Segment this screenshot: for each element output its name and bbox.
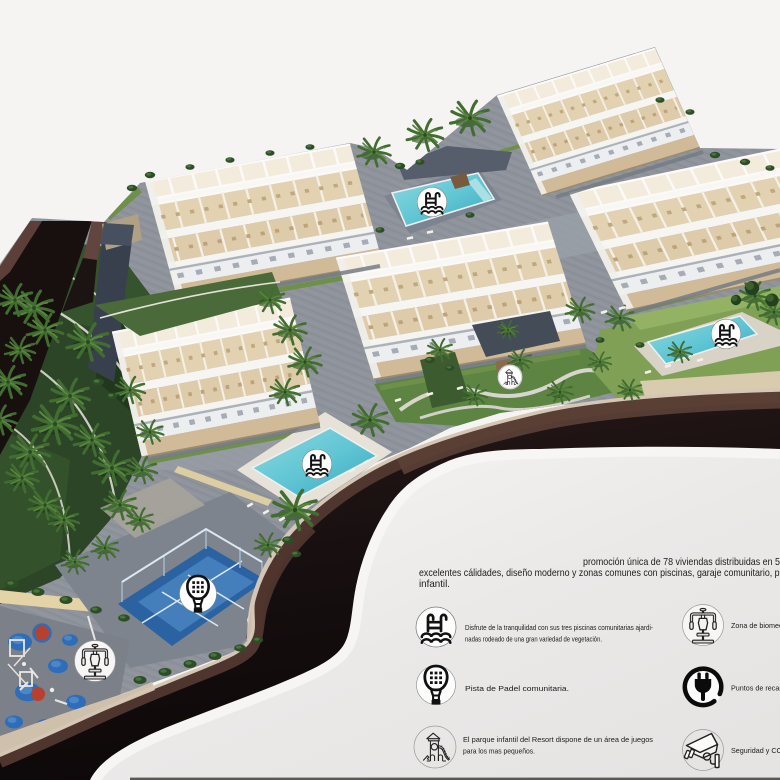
svg-text:promoción única de 78 vivienda: promoción única de 78 viviendas distribu… bbox=[583, 557, 780, 568]
svg-text:para los mas pequeños.: para los mas pequeños. bbox=[463, 747, 535, 756]
svg-text:Seguridad y CCTV.: Seguridad y CCTV. bbox=[731, 746, 780, 755]
svg-text:excelentes cálidades, diseño m: excelentes cálidades, diseño moderno y z… bbox=[419, 568, 780, 579]
svg-text:Pista de Padel comunitaria.: Pista de Padel comunitaria. bbox=[465, 684, 569, 693]
svg-text:Disfrute de la tranquilidad co: Disfrute de la tranquilidad con sus tres… bbox=[465, 623, 654, 632]
svg-text:infantil.: infantil. bbox=[419, 579, 450, 590]
svg-text:nadas rodeado de una gran vari: nadas rodeado de una gran variedad de ve… bbox=[465, 635, 602, 644]
svg-text:El parque infantil del Resort: El parque infantil del Resort dispone de… bbox=[463, 735, 653, 744]
svg-text:Zona de biomecánica: Zona de biomecánica bbox=[731, 621, 780, 630]
svg-text:Puntos de recarga eléctrica: Puntos de recarga eléctrica bbox=[731, 684, 780, 693]
